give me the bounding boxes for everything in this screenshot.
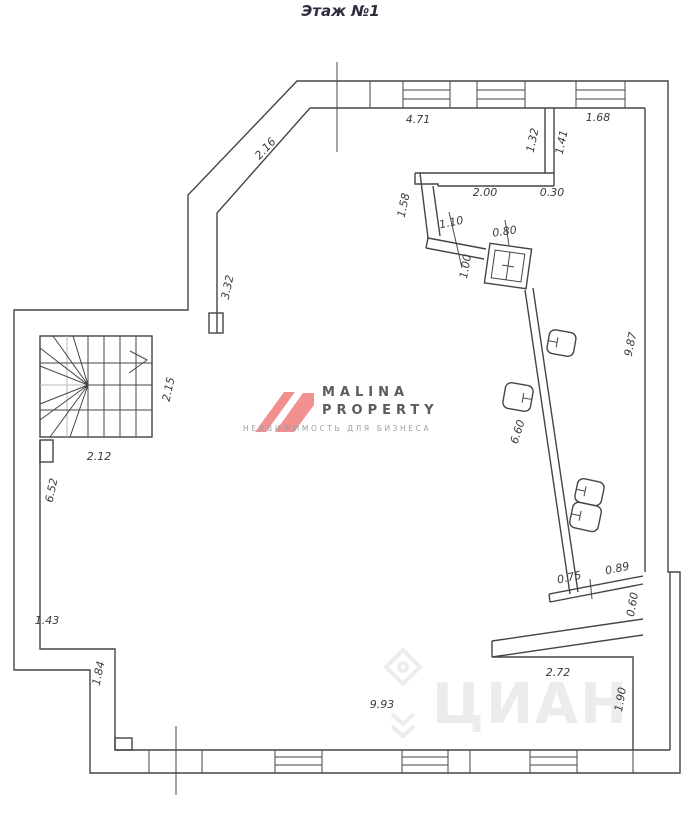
outer-wall-outline bbox=[14, 81, 680, 773]
dimension-label: 1.32 bbox=[524, 127, 542, 154]
top-wall-windows bbox=[370, 81, 625, 108]
dimension-label: 1.43 bbox=[35, 614, 60, 627]
dimension-labels: 4.711.682.161.321.412.000.301.581.100.80… bbox=[35, 111, 641, 713]
dimension-label: 9.93 bbox=[370, 698, 395, 711]
dimension-label: 0.60 bbox=[624, 591, 641, 617]
bottom-right-thin-walls bbox=[492, 576, 643, 657]
dimension-label: 1.68 bbox=[586, 111, 611, 124]
inner-wall-faces bbox=[40, 108, 670, 750]
floor-plan-page: Этаж №1 ЦИАН MALINA PROPERTY НЕДВИЖИМОСТ… bbox=[0, 0, 681, 817]
floor-plan-drawing: 4.711.682.161.321.412.000.301.581.100.80… bbox=[0, 0, 681, 817]
ventilation-shaft bbox=[484, 243, 531, 288]
dimension-label: 0.89 bbox=[604, 560, 631, 578]
radiator bbox=[502, 382, 534, 412]
radiator bbox=[546, 329, 577, 357]
staircase bbox=[40, 336, 152, 437]
dimension-label: 0.30 bbox=[540, 186, 565, 199]
dimension-label: 2.00 bbox=[473, 186, 498, 199]
dimension-label: 1.58 bbox=[395, 192, 413, 219]
dimension-label: 6.60 bbox=[508, 418, 528, 445]
dimension-label: 0.75 bbox=[556, 569, 583, 587]
dimension-label: 0.80 bbox=[491, 223, 517, 239]
stair-direction-arrow bbox=[129, 351, 147, 373]
dimension-label: 2.12 bbox=[87, 450, 112, 463]
dimension-label: 9.87 bbox=[622, 331, 640, 358]
diagonal-wall bbox=[525, 288, 578, 594]
axis-lines bbox=[176, 62, 509, 795]
dimension-label: 3.32 bbox=[219, 274, 237, 301]
dimension-label: 1.00 bbox=[457, 253, 474, 279]
dimension-label: 2.15 bbox=[160, 376, 178, 403]
bottom-wall-windows bbox=[149, 750, 633, 773]
dimension-label: 1.90 bbox=[612, 686, 629, 712]
dimension-label: 1.84 bbox=[90, 660, 108, 687]
dimension-label: 2.72 bbox=[546, 666, 571, 679]
dimension-label: 1.10 bbox=[438, 214, 465, 232]
radiator bbox=[569, 501, 603, 532]
winder-treads bbox=[40, 336, 88, 437]
dimension-label: 1.41 bbox=[553, 129, 571, 156]
dimension-label: 4.71 bbox=[406, 113, 431, 126]
dimension-label: 6.52 bbox=[43, 477, 61, 504]
